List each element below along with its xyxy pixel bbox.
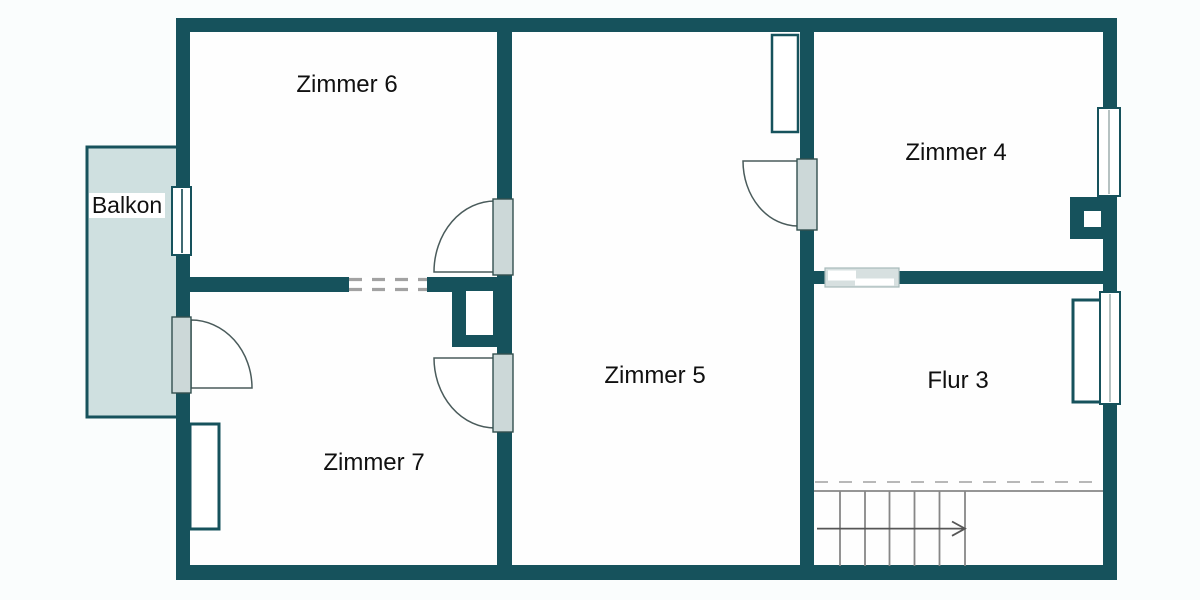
svg-text:Zimmer 6: Zimmer 6 (296, 71, 397, 98)
svg-text:Zimmer 4: Zimmer 4 (905, 139, 1006, 166)
svg-text:Zimmer 7: Zimmer 7 (323, 449, 424, 476)
svg-text:Balkon: Balkon (92, 192, 162, 218)
svg-text:Flur 3: Flur 3 (927, 367, 988, 394)
svg-text:Zimmer 5: Zimmer 5 (604, 362, 705, 389)
